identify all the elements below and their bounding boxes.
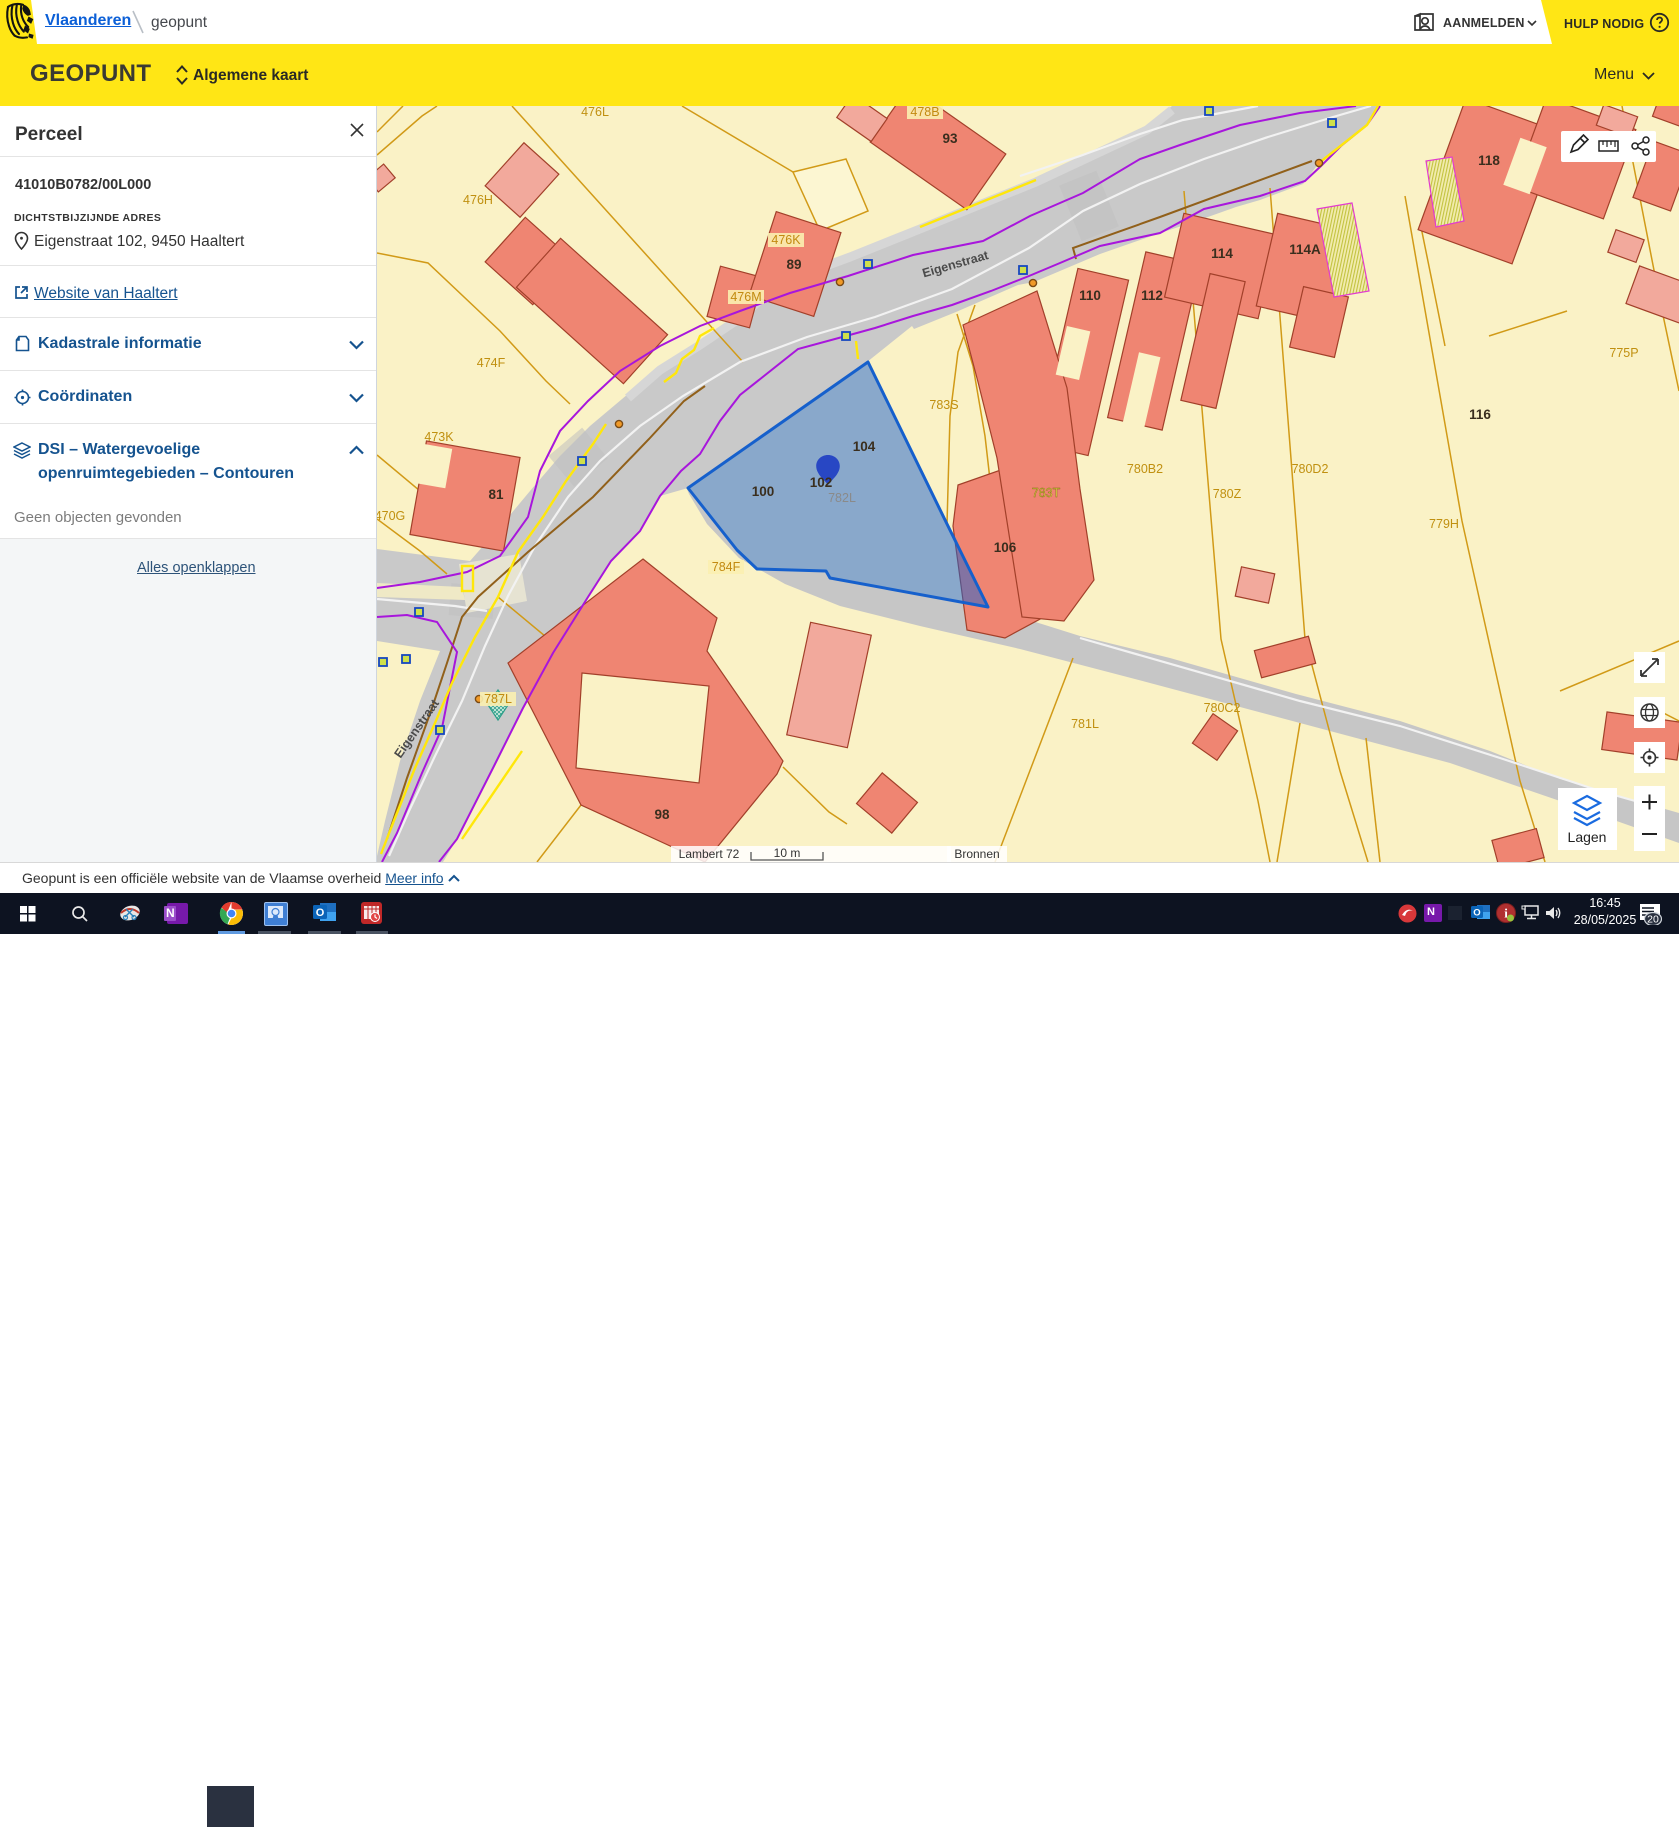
svg-text:Bronnen: Bronnen — [954, 847, 999, 861]
svg-text:Lambert 72: Lambert 72 — [679, 847, 740, 861]
svg-text:104: 104 — [853, 439, 876, 454]
svg-text:116: 116 — [1469, 407, 1491, 422]
svg-text:476K: 476K — [771, 233, 801, 247]
svg-text:476M: 476M — [730, 290, 761, 304]
svg-text:476L: 476L — [581, 106, 609, 119]
svg-text:783T: 783T — [1032, 486, 1061, 500]
svg-text:781L: 781L — [1071, 717, 1099, 731]
svg-text:O: O — [316, 907, 325, 919]
svg-text:118: 118 — [1478, 153, 1500, 168]
svg-text:780C2: 780C2 — [1204, 701, 1241, 715]
svg-text:102: 102 — [810, 475, 833, 490]
svg-text:93: 93 — [942, 131, 958, 146]
svg-text:784F: 784F — [712, 560, 741, 574]
svg-text:473K: 473K — [424, 430, 454, 444]
svg-text:100: 100 — [752, 484, 775, 499]
svg-text:780B2: 780B2 — [1127, 462, 1163, 476]
svg-text:780Z: 780Z — [1213, 487, 1242, 501]
svg-text:10 m: 10 m — [774, 846, 801, 860]
svg-text:787L: 787L — [484, 692, 512, 706]
svg-text:81: 81 — [488, 487, 504, 502]
svg-text:110: 110 — [1079, 288, 1101, 303]
svg-text:114: 114 — [1211, 246, 1233, 261]
svg-text:112: 112 — [1141, 288, 1163, 303]
svg-text:474F: 474F — [477, 356, 506, 370]
svg-text:775P: 775P — [1609, 346, 1638, 360]
svg-text:106: 106 — [994, 540, 1017, 555]
svg-text:Lagen: Lagen — [1568, 829, 1607, 845]
svg-text:782L: 782L — [828, 491, 856, 505]
svg-text:O: O — [1473, 908, 1480, 919]
svg-text:779H: 779H — [1429, 517, 1459, 531]
svg-text:470G: 470G — [377, 509, 405, 523]
svg-text:476H: 476H — [463, 193, 493, 207]
svg-text:89: 89 — [786, 257, 801, 272]
svg-text:98: 98 — [654, 807, 670, 822]
svg-text:114A: 114A — [1289, 242, 1321, 257]
svg-text:783S: 783S — [929, 398, 958, 412]
svg-text:780D2: 780D2 — [1292, 462, 1329, 476]
svg-text:478B: 478B — [910, 106, 939, 119]
svg-text:20: 20 — [1647, 914, 1659, 926]
